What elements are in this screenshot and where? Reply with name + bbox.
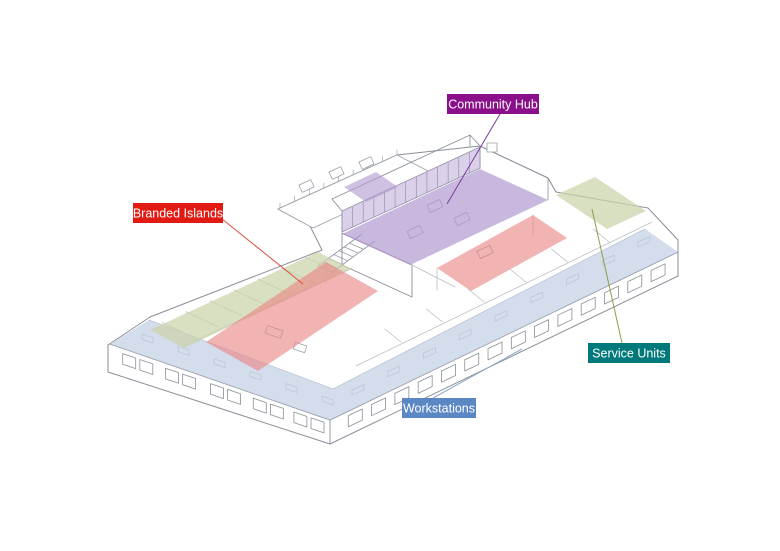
roof-plant-box: [487, 143, 497, 152]
floorplan-canvas: Community Hub Branded Islands Service Un…: [0, 0, 780, 551]
label-service-units: Service Units: [588, 343, 670, 363]
label-community-hub-text: Community Hub: [448, 98, 538, 112]
label-workstations-text: Workstations: [403, 402, 475, 416]
label-branded-islands-text: Branded Islands: [133, 207, 223, 221]
label-workstations: Workstations: [402, 398, 476, 418]
label-service-units-text: Service Units: [592, 347, 666, 361]
label-branded-islands: Branded Islands: [133, 203, 223, 223]
label-community-hub: Community Hub: [447, 94, 539, 114]
table-icon: [329, 167, 344, 180]
table-icon: [299, 180, 314, 193]
